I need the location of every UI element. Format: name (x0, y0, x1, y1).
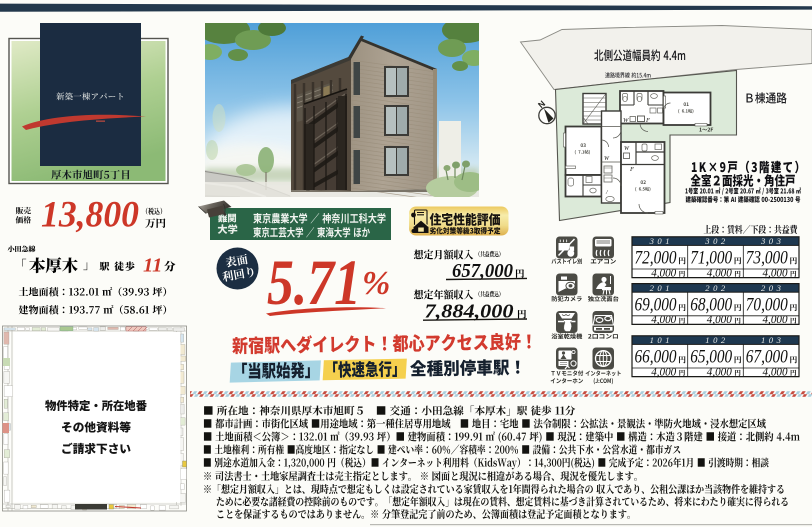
svg-text:103: 103 (761, 335, 784, 345)
svg-text:73,000: 73,000 (746, 248, 788, 269)
svg-text:4,000: 4,000 (651, 314, 676, 326)
svg-text:67,000: 67,000 (746, 347, 788, 368)
svg-text:4,000: 4,000 (707, 267, 732, 279)
svg-text:4,000: 4,000 (763, 314, 788, 326)
svg-text:102: 102 (705, 335, 728, 345)
svg-text:303: 303 (760, 236, 784, 246)
svg-text:%: % (362, 265, 390, 302)
svg-text:4,000: 4,000 (651, 366, 676, 378)
svg-text:4,000: 4,000 (707, 314, 732, 326)
svg-text:302: 302 (704, 236, 728, 246)
svg-text:11: 11 (143, 255, 162, 277)
svg-text:72,000: 72,000 (635, 248, 677, 269)
svg-text:203: 203 (761, 283, 784, 293)
svg-text:301: 301 (649, 236, 673, 246)
svg-text:W: W (623, 117, 629, 124)
svg-text:201: 201 (650, 283, 673, 293)
svg-text:69,000: 69,000 (635, 294, 677, 315)
svg-text:101: 101 (650, 335, 673, 345)
svg-text:4,000: 4,000 (763, 267, 788, 279)
svg-text:70,000: 70,000 (746, 294, 788, 315)
svg-text:71,000: 71,000 (690, 248, 732, 269)
svg-text:4,000: 4,000 (707, 366, 732, 378)
svg-text:4,000: 4,000 (763, 366, 788, 378)
svg-text:202: 202 (705, 283, 728, 293)
svg-text:65,000: 65,000 (690, 347, 732, 368)
svg-text:13,800: 13,800 (41, 195, 139, 236)
svg-text:66,000: 66,000 (635, 347, 677, 368)
svg-text:68,000: 68,000 (690, 294, 732, 315)
svg-text:4,000: 4,000 (651, 267, 676, 279)
